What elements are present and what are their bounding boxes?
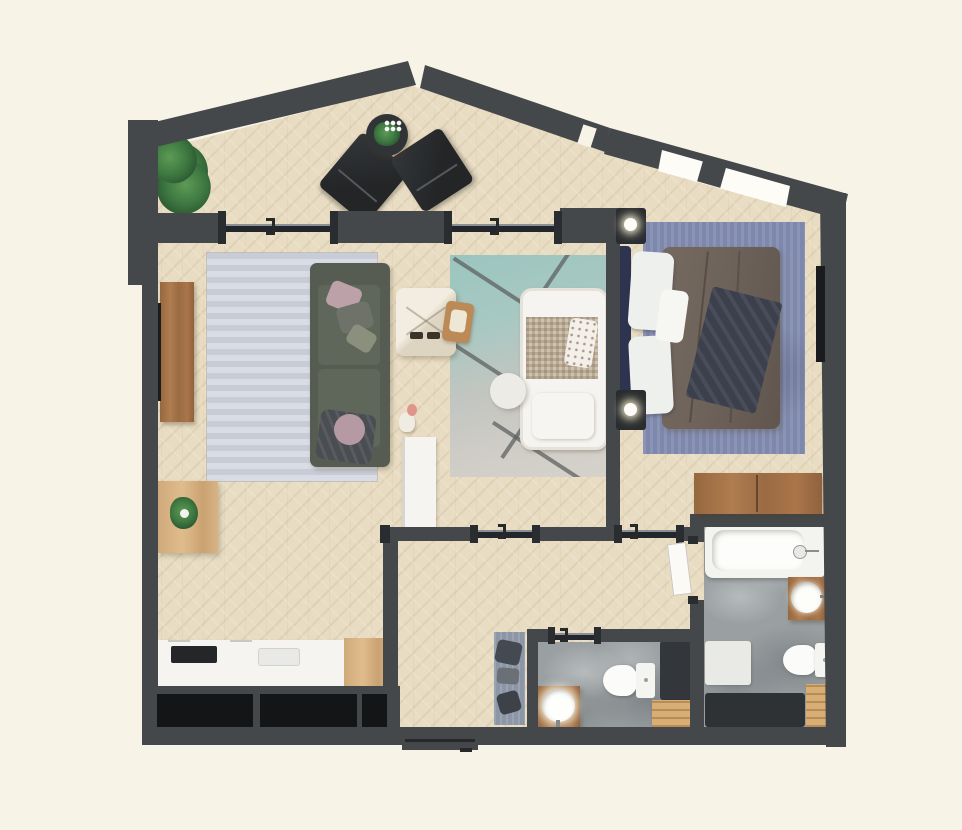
sliding-door-handle [266, 218, 275, 235]
wc-top-wall-segment [601, 629, 692, 642]
balcony-wall-segment [336, 211, 446, 243]
balcony-wall-segment [130, 213, 224, 243]
sliding-door-handle [498, 524, 506, 539]
nightstand-top [616, 208, 646, 244]
floorplan-stage [0, 0, 962, 830]
door-jamb [676, 525, 684, 543]
toilet-bowl [783, 645, 818, 675]
teepee-door-mark [427, 332, 440, 339]
bathroom-shower-tray [705, 693, 805, 727]
kids-high-chair [441, 300, 474, 344]
kitchen-window [260, 694, 357, 727]
wc-duckboard [652, 700, 694, 727]
door-jamb [470, 525, 478, 543]
bathroom-sink [791, 582, 822, 613]
bathtub-spout [805, 550, 819, 552]
balcony-living-sliding-door [226, 224, 332, 232]
door-jamb [548, 627, 555, 644]
kitchen-window [362, 694, 387, 727]
door-jamb [614, 525, 622, 543]
bathroom-left-wall-lower [690, 600, 704, 729]
kids-wardrobe [402, 437, 436, 529]
door-jamb [594, 627, 601, 644]
door-jamb [218, 211, 226, 244]
high-chair-seat [449, 309, 468, 333]
door-jamb [554, 211, 562, 244]
wc-left-wall [527, 629, 538, 727]
runner-garment-gray [496, 667, 519, 684]
outer-wall-left-lower [142, 283, 158, 745]
counter-handle [168, 640, 190, 642]
entry-door-handle [460, 748, 472, 752]
outer-wall-bottom [142, 727, 844, 745]
toilet-bowl [603, 665, 638, 696]
kids-bed [520, 288, 608, 450]
door-jamb [688, 536, 698, 544]
sofa-round-pillow [334, 414, 365, 445]
table-flowers-white [384, 120, 402, 132]
dining-table [158, 481, 218, 553]
bathroom-vanity [788, 577, 826, 620]
cooktop [171, 646, 217, 663]
entry-door-leaf [405, 739, 475, 742]
round-pouf [490, 373, 526, 409]
plant-vase [180, 509, 189, 518]
figurine-accent [407, 404, 417, 416]
kitchen-counter [158, 640, 346, 688]
lobby-wall-cabinet [694, 473, 822, 514]
bathtub-faucet [793, 545, 807, 559]
kids-bed-pillow [532, 393, 594, 439]
wc-toilet [603, 663, 655, 698]
hallway-wall-segment [540, 527, 616, 541]
lounge-chair-fold [338, 169, 378, 203]
door-jamb [532, 525, 540, 543]
bathroom-top-wall [697, 514, 824, 527]
nightstand-lamp [624, 403, 637, 416]
nightstand-bottom [616, 390, 646, 430]
balcony-side-table [366, 114, 408, 156]
nightstand-lamp [624, 218, 637, 231]
bath-mat [705, 641, 751, 685]
decor-figurine [399, 404, 421, 434]
counter-handle [230, 640, 252, 642]
cabinet-divider [756, 475, 758, 512]
kitchen-window [157, 694, 253, 727]
sliding-door-handle [630, 524, 638, 539]
wc-vanity [538, 686, 580, 727]
bathroom-duckboard [806, 684, 826, 727]
door-jamb [330, 211, 338, 244]
kitchen-sink [258, 648, 300, 666]
media-console [160, 282, 194, 422]
sliding-door-handle [490, 218, 499, 235]
door-jamb [688, 596, 698, 604]
door-jamb [380, 525, 390, 543]
balcony-kids-sliding-door [452, 224, 556, 232]
teepee-door-mark [410, 332, 423, 339]
toilet-button [644, 678, 648, 682]
bedroom-west-wall [606, 226, 620, 532]
hallway-wall-segment [388, 527, 472, 541]
lounge-chair-fold [416, 164, 457, 192]
bathtub [705, 523, 826, 578]
sliding-door-handle [560, 628, 568, 642]
bathtub-basin [712, 530, 804, 571]
wc-sink [542, 689, 575, 722]
door-jamb [444, 211, 452, 244]
wc-sink-faucet [556, 720, 560, 727]
runner-garment-dark [494, 639, 523, 667]
tv-panel-bedroom [816, 266, 825, 362]
